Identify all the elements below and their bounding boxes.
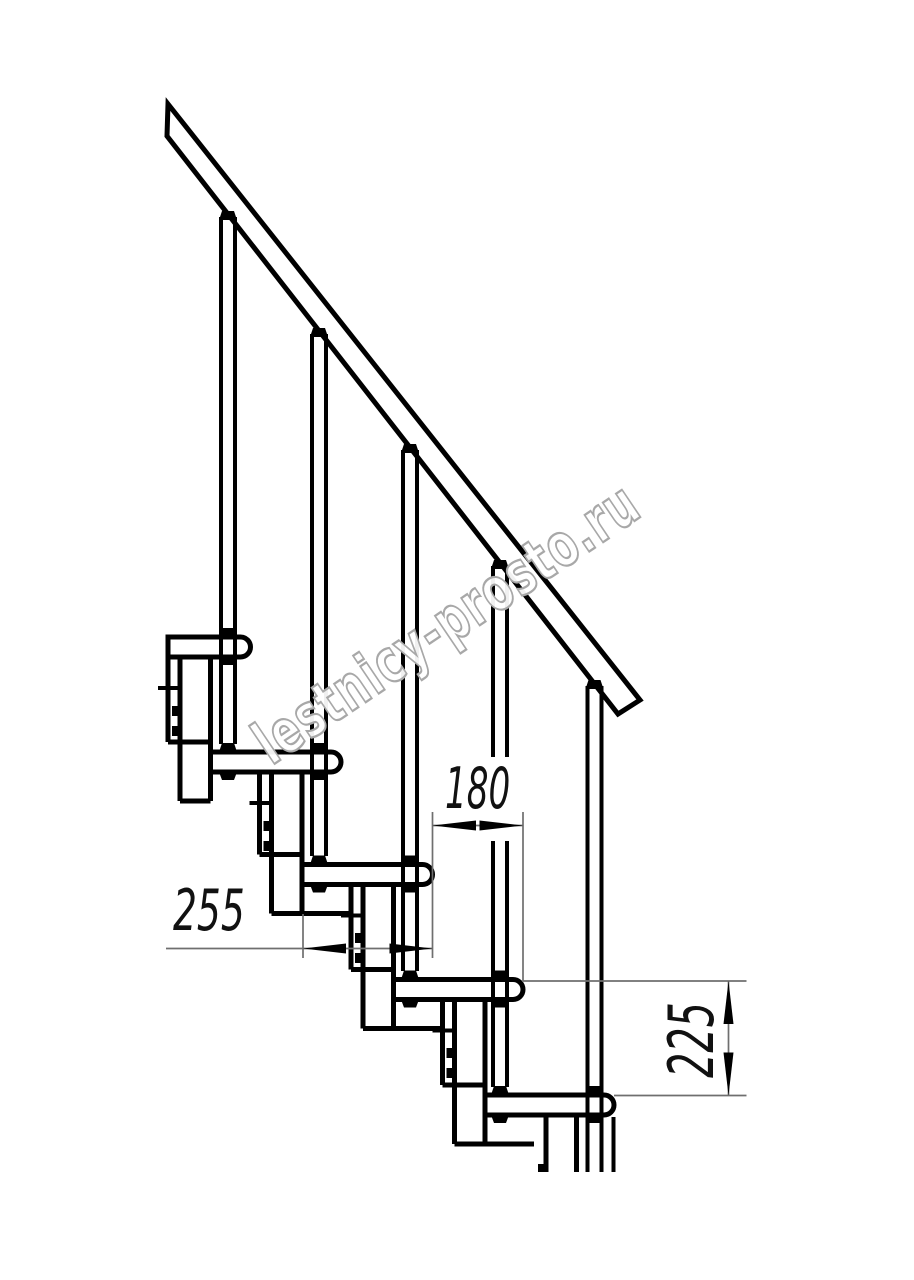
step-4 xyxy=(394,980,524,1000)
rail-nut-icon xyxy=(310,328,328,337)
bolt-icon xyxy=(264,821,274,831)
step-5 xyxy=(485,1095,614,1115)
dimension-label-180: 180 xyxy=(445,756,510,823)
dimension-180: 180 xyxy=(433,756,524,981)
bolt-icon xyxy=(264,841,274,851)
support-module-3 xyxy=(341,885,443,1029)
arrowhead-icon xyxy=(390,944,433,954)
bolt-icon xyxy=(447,1048,457,1058)
watermark-text: lestnicy-prosto.ru xyxy=(241,469,653,779)
dimension-225: 225 xyxy=(523,981,747,1096)
arrowhead-icon xyxy=(303,944,346,954)
support-module-2 xyxy=(250,772,352,914)
bolt-icon xyxy=(538,1164,548,1172)
step-1 xyxy=(168,637,251,657)
support-module-1 xyxy=(158,657,211,801)
staircase-drawing: 180 255 225 lestnicy-prosto.ru xyxy=(0,0,914,1280)
rail-nut-icon xyxy=(401,444,419,453)
support-module-4 xyxy=(433,1000,535,1145)
dimension-label-255: 255 xyxy=(173,878,245,944)
rail-nut-icon xyxy=(219,211,237,220)
bolt-icon xyxy=(172,706,182,716)
bolt-icon xyxy=(447,1068,457,1078)
baluster-3 xyxy=(403,450,417,971)
bolt-icon xyxy=(355,953,365,963)
support-module-5 xyxy=(538,1115,577,1172)
technical-drawing-page: 180 255 225 lestnicy-prosto.ru xyxy=(0,0,914,1280)
rail-nut-icon xyxy=(586,680,604,689)
step-3 xyxy=(302,865,433,885)
dimension-label-225: 225 xyxy=(657,1002,728,1078)
bolt-icon xyxy=(172,726,182,736)
bolt-icon xyxy=(355,933,365,943)
